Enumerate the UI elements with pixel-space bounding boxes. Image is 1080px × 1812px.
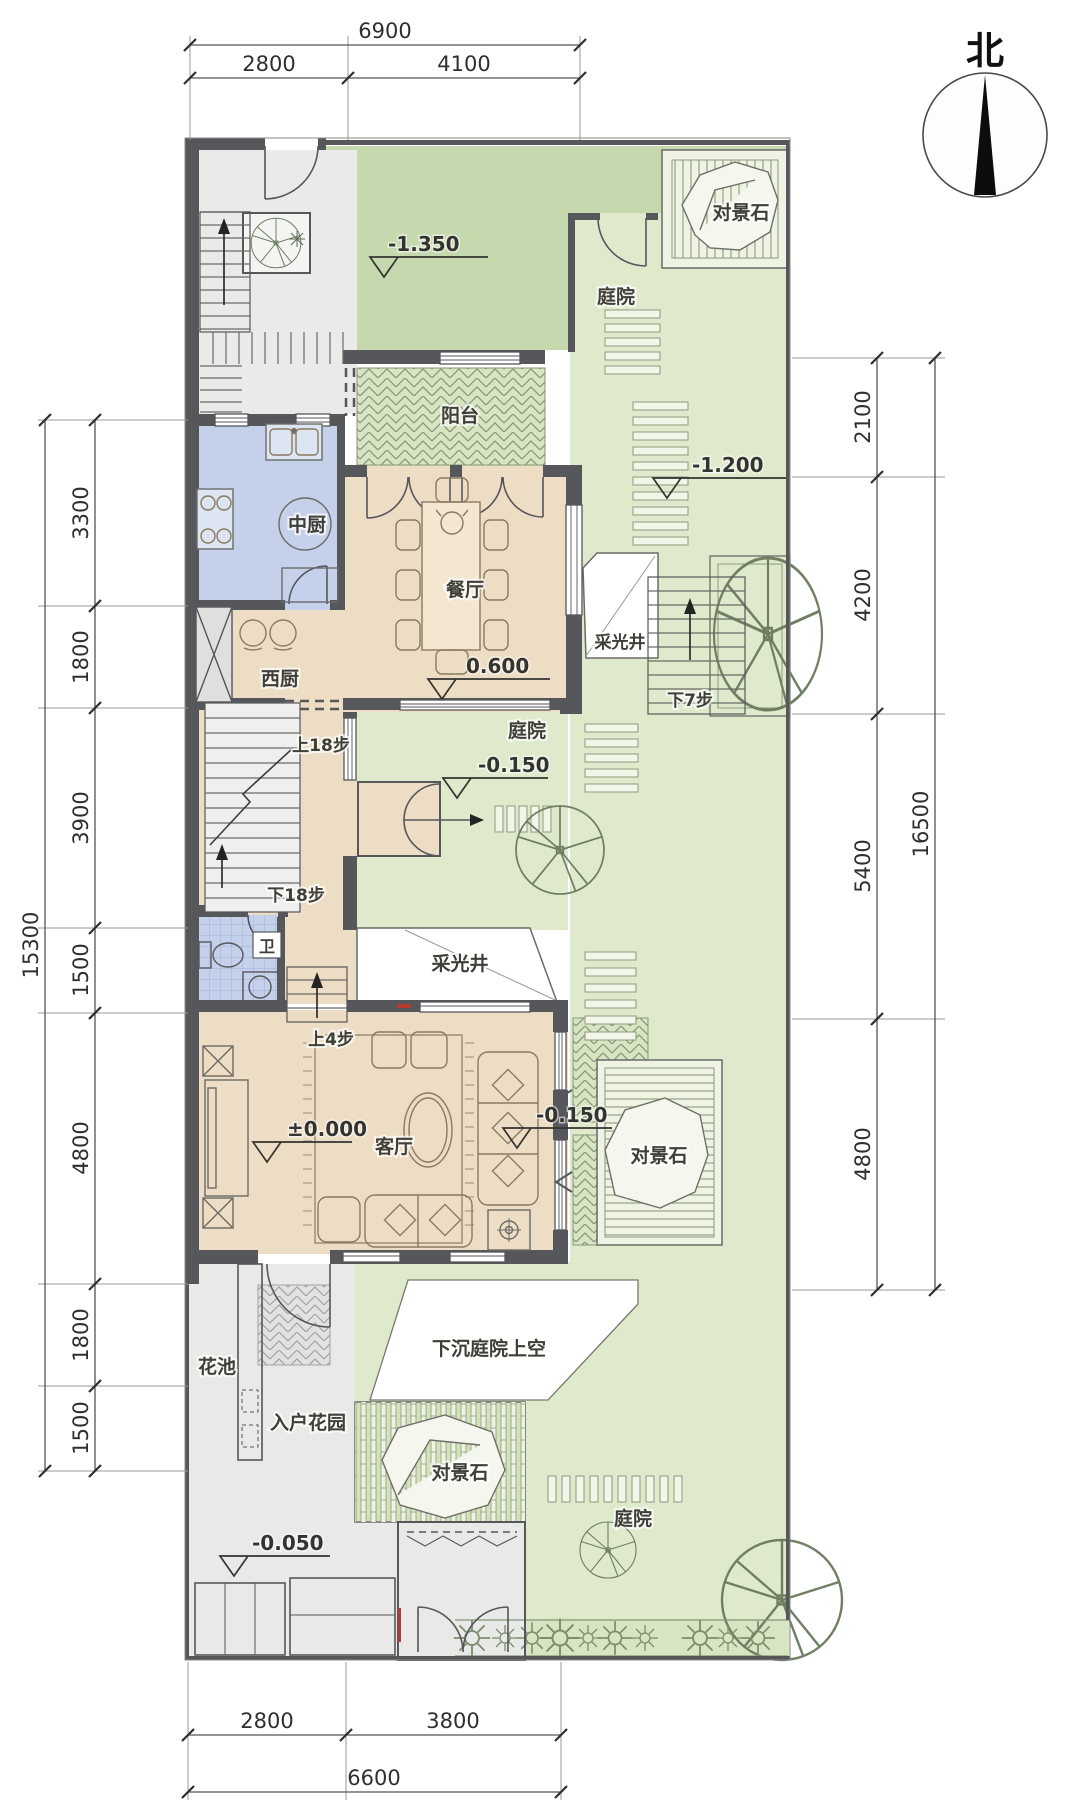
- dim-left-2: 3900: [69, 791, 93, 844]
- floor-plan: -1.350 -1.200 0.600 -0.150 ±0.000 -0.150…: [0, 0, 1080, 1812]
- elevation-entrance: -0.050: [252, 1531, 324, 1555]
- label-entry-garden: 入户花园: [270, 1411, 346, 1434]
- dim-left-total: 15300: [19, 912, 43, 979]
- label-courtyard-top: 庭院: [597, 285, 635, 308]
- elevation-mid-courtyard: -0.150: [478, 753, 550, 777]
- dim-left-5: 1800: [69, 1308, 93, 1361]
- dim-right-total: 16500: [909, 791, 933, 858]
- elevation-dining: 0.600: [466, 654, 529, 678]
- label-courtyard-mid: 庭院: [508, 719, 546, 742]
- dim-left-3: 1500: [69, 943, 93, 996]
- dim-right-2: 5400: [851, 839, 875, 892]
- label-dining: 餐厅: [446, 578, 484, 601]
- dim-left-6: 1500: [69, 1401, 93, 1454]
- dim-right-0: 2100: [851, 390, 875, 443]
- dim-top-total: 6900: [358, 19, 411, 43]
- label-flower-bed: 花池: [198, 1355, 236, 1378]
- label-stair-down18: 下18步: [267, 885, 325, 906]
- dim-top-seg2: 4100: [437, 52, 490, 76]
- label-living: 客厅: [375, 1135, 413, 1158]
- ground-fills: [0, 0, 1080, 1812]
- dim-bottom-seg2: 3800: [426, 1709, 479, 1733]
- dim-left-1: 1800: [69, 630, 93, 683]
- label-lightwell-mid: 采光井: [431, 952, 488, 975]
- label-stone-mid: 对景石: [630, 1144, 687, 1167]
- dim-bottom-total: 6600: [347, 1766, 400, 1790]
- north-label: 北: [966, 29, 1004, 73]
- dim-left-0: 3300: [69, 486, 93, 539]
- label-courtyard-bottom: 庭院: [614, 1507, 652, 1530]
- label-sunken-courtyard: 下沉庭院上空: [432, 1337, 546, 1360]
- elevation-top-courtyard: -1.350: [388, 232, 460, 256]
- label-balcony: 阳台: [441, 404, 479, 427]
- label-stone-bottom: 对景石: [431, 1461, 488, 1484]
- elevation-south-courtyard: -0.150: [536, 1103, 608, 1127]
- elevation-living: ±0.000: [287, 1117, 367, 1141]
- dim-left-4: 4800: [69, 1121, 93, 1174]
- label-stair-up18: 上18步: [292, 735, 350, 756]
- label-stair-down7: 下7步: [667, 690, 713, 711]
- label-stone-top: 对景石: [712, 201, 769, 224]
- label-kitchen-west: 西厨: [261, 668, 299, 690]
- dim-top-seg1: 2800: [242, 52, 295, 76]
- dim-bottom-seg1: 2800: [240, 1709, 293, 1733]
- dim-right-1: 4200: [851, 568, 875, 621]
- elevation-east-courtyard: -1.200: [692, 453, 764, 477]
- label-lightwell-east: 采光井: [594, 632, 646, 653]
- floor-plan-page: -1.350 -1.200 0.600 -0.150 ±0.000 -0.150…: [0, 0, 1080, 1812]
- label-kitchen-cn: 中厨: [288, 513, 326, 536]
- dim-right-3: 4800: [851, 1127, 875, 1180]
- label-stair-up4: 上4步: [308, 1029, 354, 1050]
- label-bath: 卫: [259, 937, 275, 956]
